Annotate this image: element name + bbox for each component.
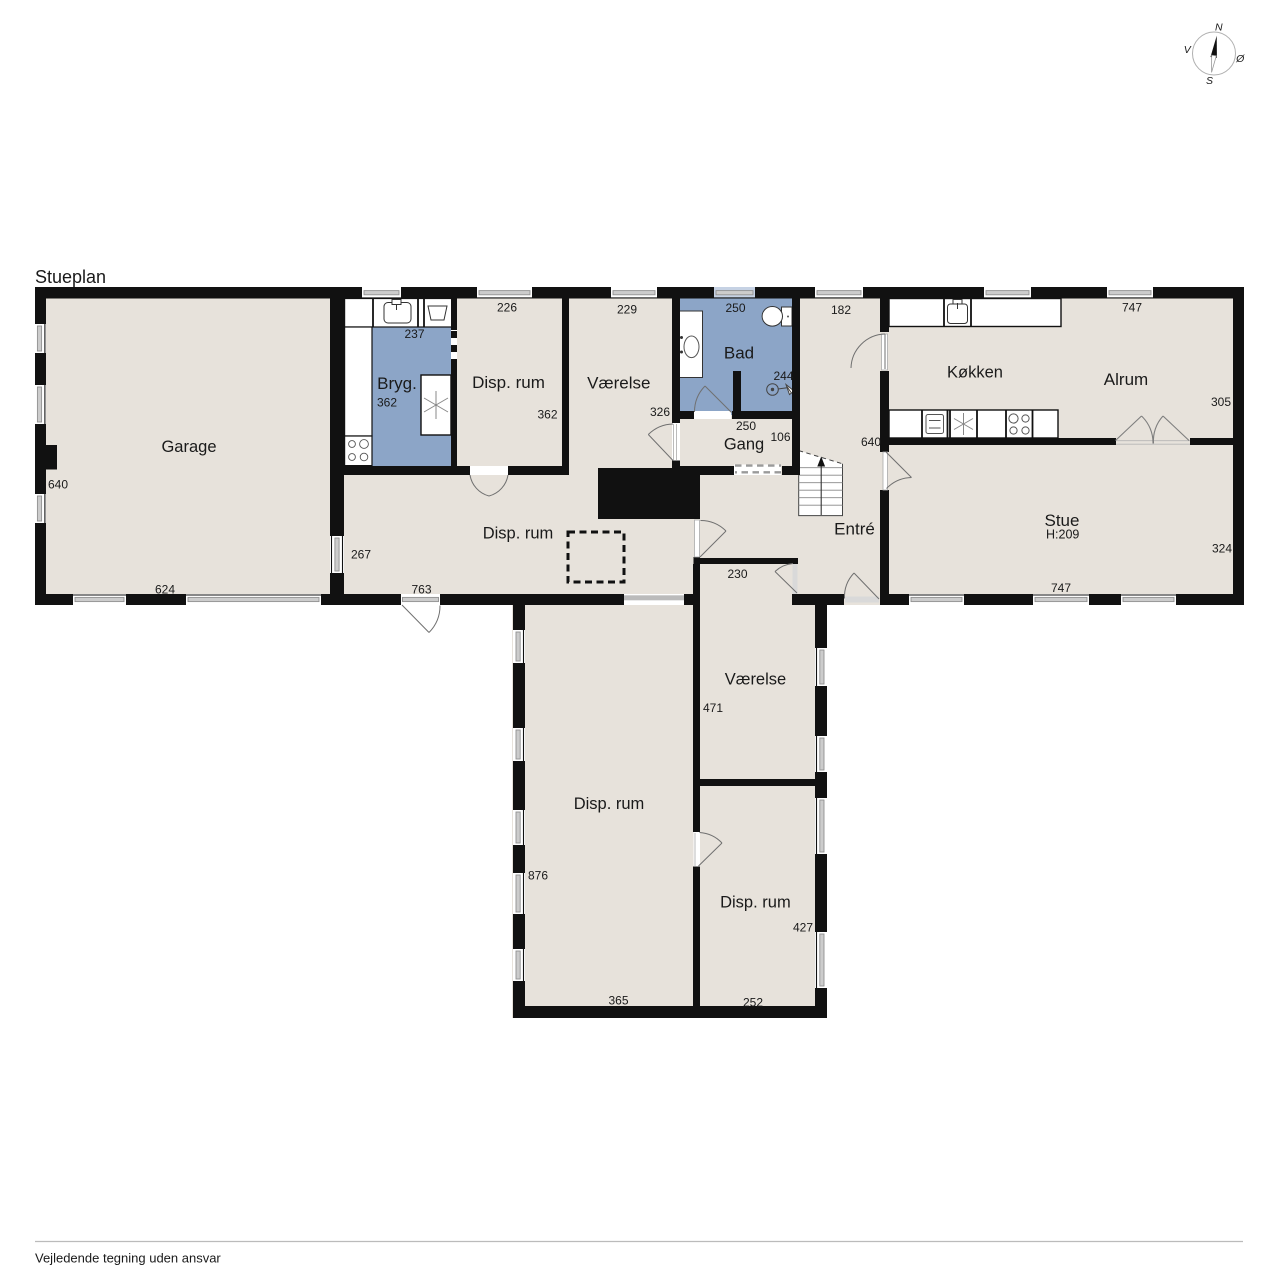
svg-text:Disp. rum: Disp. rum (574, 795, 645, 813)
svg-text:226: 226 (497, 301, 517, 315)
svg-text:747: 747 (1122, 301, 1142, 315)
svg-text:244: 244 (773, 369, 793, 383)
svg-text:305: 305 (1211, 395, 1231, 409)
svg-text:624: 624 (155, 583, 175, 597)
svg-text:Gang: Gang (724, 436, 764, 454)
svg-text:H:209: H:209 (1046, 528, 1079, 542)
svg-text:229: 229 (617, 303, 637, 317)
svg-text:747: 747 (1051, 581, 1071, 595)
svg-text:182: 182 (831, 303, 851, 317)
svg-text:362: 362 (537, 408, 557, 422)
svg-text:250: 250 (736, 419, 756, 433)
svg-text:640: 640 (48, 478, 68, 492)
svg-text:876: 876 (528, 869, 548, 883)
svg-text:Alrum: Alrum (1104, 370, 1148, 389)
svg-text:106: 106 (770, 430, 790, 444)
svg-text:362: 362 (377, 396, 397, 410)
svg-text:267: 267 (351, 548, 371, 562)
svg-text:Disp. rum: Disp. rum (472, 373, 545, 392)
svg-text:427: 427 (793, 921, 813, 935)
svg-text:326: 326 (650, 405, 670, 419)
svg-text:237: 237 (404, 327, 424, 341)
svg-text:365: 365 (608, 994, 628, 1008)
svg-text:Ø: Ø (1235, 53, 1245, 65)
svg-text:Køkken: Køkken (947, 364, 1003, 382)
svg-text:V: V (1184, 44, 1192, 56)
svg-text:471: 471 (703, 701, 723, 715)
svg-text:N: N (1215, 22, 1223, 34)
svg-text:230: 230 (727, 567, 747, 581)
svg-text:Disp. rum: Disp. rum (720, 894, 791, 912)
svg-text:640: 640 (861, 435, 881, 449)
svg-text:Værelse: Værelse (725, 671, 786, 689)
svg-text:Bad: Bad (724, 344, 754, 363)
svg-text:Vejledende tegning uden ansvar: Vejledende tegning uden ansvar (35, 1251, 221, 1266)
svg-text:324: 324 (1212, 542, 1232, 556)
svg-text:Disp. rum: Disp. rum (483, 525, 554, 543)
svg-text:763: 763 (411, 583, 431, 597)
svg-text:Entré: Entré (834, 520, 875, 539)
svg-text:252: 252 (743, 996, 763, 1010)
svg-text:Garage: Garage (161, 438, 216, 456)
svg-text:Værelse: Værelse (587, 373, 650, 392)
svg-text:250: 250 (725, 301, 745, 315)
svg-text:Stueplan: Stueplan (35, 267, 106, 287)
svg-text:S: S (1206, 75, 1213, 87)
svg-text:Bryg.: Bryg. (377, 374, 417, 393)
